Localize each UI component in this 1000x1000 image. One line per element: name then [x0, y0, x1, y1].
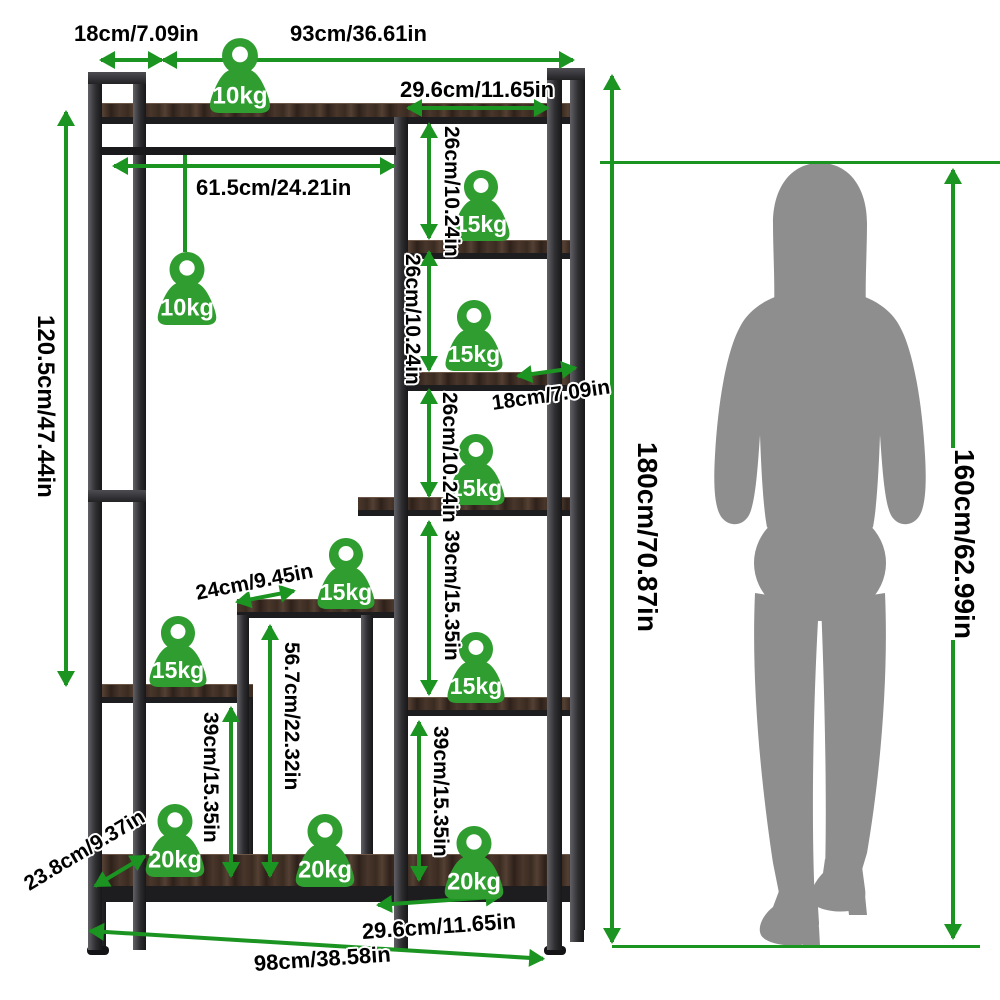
dim-tower-width-arrow: [408, 106, 548, 110]
dim-total-height-arrow: [610, 76, 614, 942]
label-top-width: 93cm/36.61in: [290, 22, 427, 46]
silhouette-left-leg: [754, 593, 819, 903]
hanging-weight-line: [183, 155, 187, 252]
top-shelf-frame: [88, 117, 585, 124]
dim-hanging-height-arrow: [64, 112, 68, 685]
label-tower-width: 29.6cm/11.65in: [400, 78, 554, 102]
weight-label: 20kg: [148, 848, 202, 874]
dim-tower-gap-mid-arrow: [427, 522, 431, 694]
silhouette-torso-arms: [714, 289, 925, 542]
weight-label: 10kg: [160, 296, 214, 322]
label-base-inner-width: 29.6cm/11.65in: [361, 909, 516, 944]
label-tower-gap2: 26cm/10.24in: [401, 254, 424, 385]
weight-icon-top-shelf: 10kg: [202, 36, 278, 114]
dim-tower-gap2-arrow: [427, 252, 431, 370]
weight-icon-left-shelf: 15kg: [142, 614, 214, 688]
weight-icon-step-shelf: 15kg: [310, 536, 382, 610]
tower-left-post: [394, 117, 408, 950]
weight-label: 20kg: [447, 870, 501, 896]
left-top-beam: [88, 72, 146, 84]
label-tower-gap-bottom: 39cm/15.35in: [429, 726, 452, 857]
label-person-height: 160cm/62.99in: [945, 448, 982, 640]
person-top-reference-line: [600, 161, 1000, 164]
label-tower-gap-mid: 39cm/15.35in: [440, 530, 463, 661]
weight-label: 15kg: [450, 673, 502, 699]
weight-icon-hanging-rod: 10kg: [150, 250, 224, 326]
step-leg-left: [237, 615, 249, 883]
floor-reference-line: [612, 945, 980, 948]
weight-label: 10kg: [212, 82, 267, 109]
dim-tower-gap3-arrow: [427, 390, 431, 496]
label-total-height: 180cm/70.87in: [631, 442, 662, 632]
label-tower-gap3: 26cm/10.24in: [438, 392, 461, 523]
left-mid-beam: [88, 490, 146, 502]
tower-right-back-post: [570, 68, 585, 930]
step-leg-right: [361, 615, 373, 883]
label-step-height: 56.7cm/22.32in: [280, 642, 303, 790]
label-top-depth: 18cm/7.09in: [74, 22, 199, 46]
dim-tower-gap1-arrow: [427, 124, 431, 238]
dim-top-depth-arrow: [101, 58, 162, 62]
weight-icon-base-middle: 20kg: [288, 812, 362, 888]
weight-label: 15kg: [320, 579, 372, 605]
silhouette-right-leg: [821, 593, 886, 873]
weight-label: 20kg: [298, 858, 352, 884]
left-front-post: [88, 72, 102, 950]
label-tower-gap1: 26cm/10.24in: [440, 126, 463, 257]
product-dimension-diagram: 10kg 10kg 15kg 15kg 15kg 15kg 15kg 15kg …: [0, 0, 1000, 1000]
dim-tower-gap-bottom-arrow: [417, 722, 421, 880]
person-silhouette: [703, 163, 938, 948]
label-left-shelf-height: 39cm/15.35in: [199, 712, 222, 843]
dim-left-shelf-height-arrow: [229, 708, 233, 876]
weight-label: 15kg: [448, 341, 500, 367]
dim-step-height-arrow: [268, 626, 272, 876]
weight-label: 15kg: [152, 657, 204, 683]
dim-rod-length-arrow: [114, 164, 394, 168]
label-total-width: 98cm/38.58in: [253, 942, 391, 976]
hanging-rod: [100, 147, 396, 155]
label-hanging-height: 120.5cm/47.44in: [32, 315, 58, 498]
left-shelf-frame: [88, 697, 253, 703]
weight-icon-tower-shelf-2: 15kg: [438, 298, 510, 372]
label-rod-length: 61.5cm/24.21in: [196, 176, 351, 200]
tower-right-front-post: [547, 68, 562, 950]
